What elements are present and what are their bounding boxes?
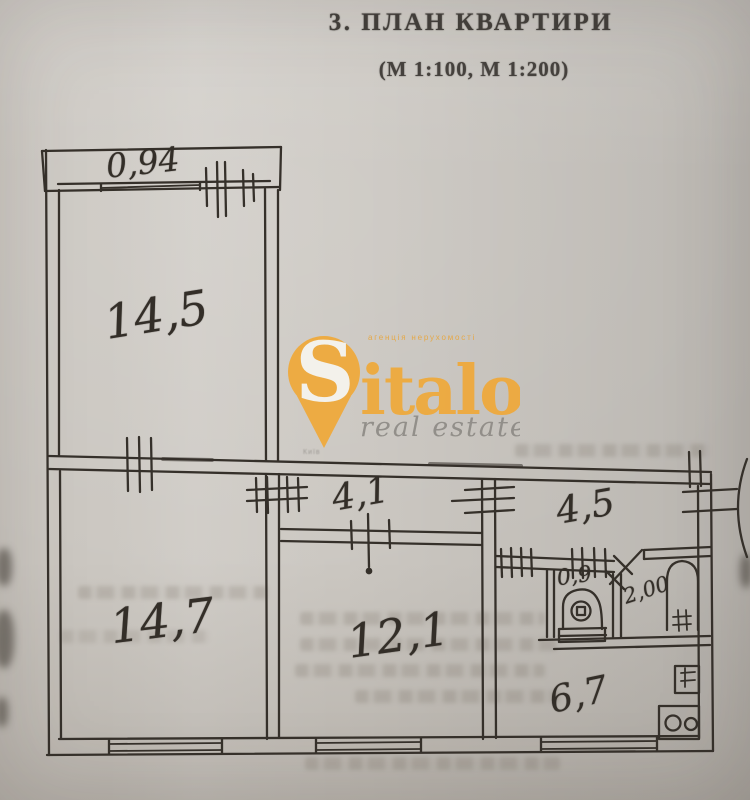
scanned-floor-plan-page: 3. ПЛАН КВАРТИРИ (М 1:100, М 1:200) <box>0 0 750 800</box>
bathtub-icon <box>667 561 698 631</box>
kitchen-sink-icon <box>675 666 699 693</box>
entrance-door <box>683 451 747 557</box>
watermark-agency-line: агенція нерухомості <box>368 333 476 342</box>
watermark-logo: агенція нерухомості S italo real estate <box>280 326 520 481</box>
toilet-icon <box>559 589 606 642</box>
watermark-brand-initial: S <box>295 326 354 421</box>
label-balcony-width: 0,94 <box>104 142 181 183</box>
label-hallway-4-5: 4,5 <box>553 483 617 530</box>
label-kitchen-6-7: 6,7 <box>546 670 611 718</box>
label-room-14-7: 14,7 <box>108 592 218 651</box>
map-pin-icon: S <box>288 326 360 448</box>
stove-icon <box>659 706 699 739</box>
entrance-door-arc <box>738 459 747 557</box>
watermark-city-mark: Київ <box>303 449 321 456</box>
agency-watermark: агенція нерухомості S italo real estate … <box>280 326 520 481</box>
watermark-tagline: real estate <box>360 412 520 443</box>
label-room-12-1: 12,1 <box>344 605 452 665</box>
label-wc-0-9: 0,9 <box>556 564 594 591</box>
